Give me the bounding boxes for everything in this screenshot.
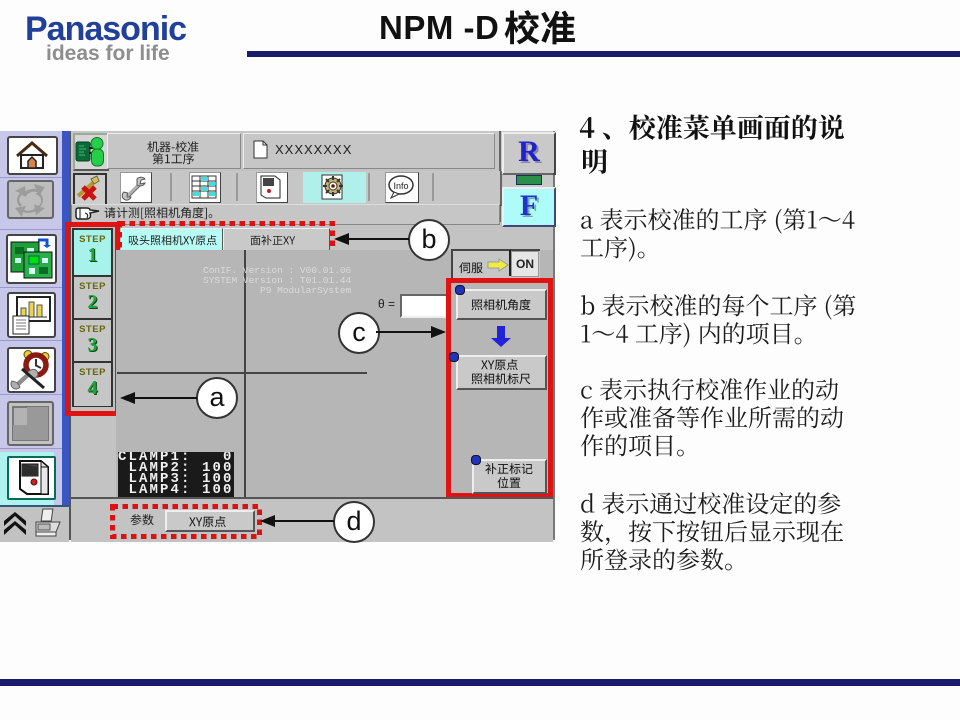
svg-text:Info: Info: [393, 181, 408, 191]
